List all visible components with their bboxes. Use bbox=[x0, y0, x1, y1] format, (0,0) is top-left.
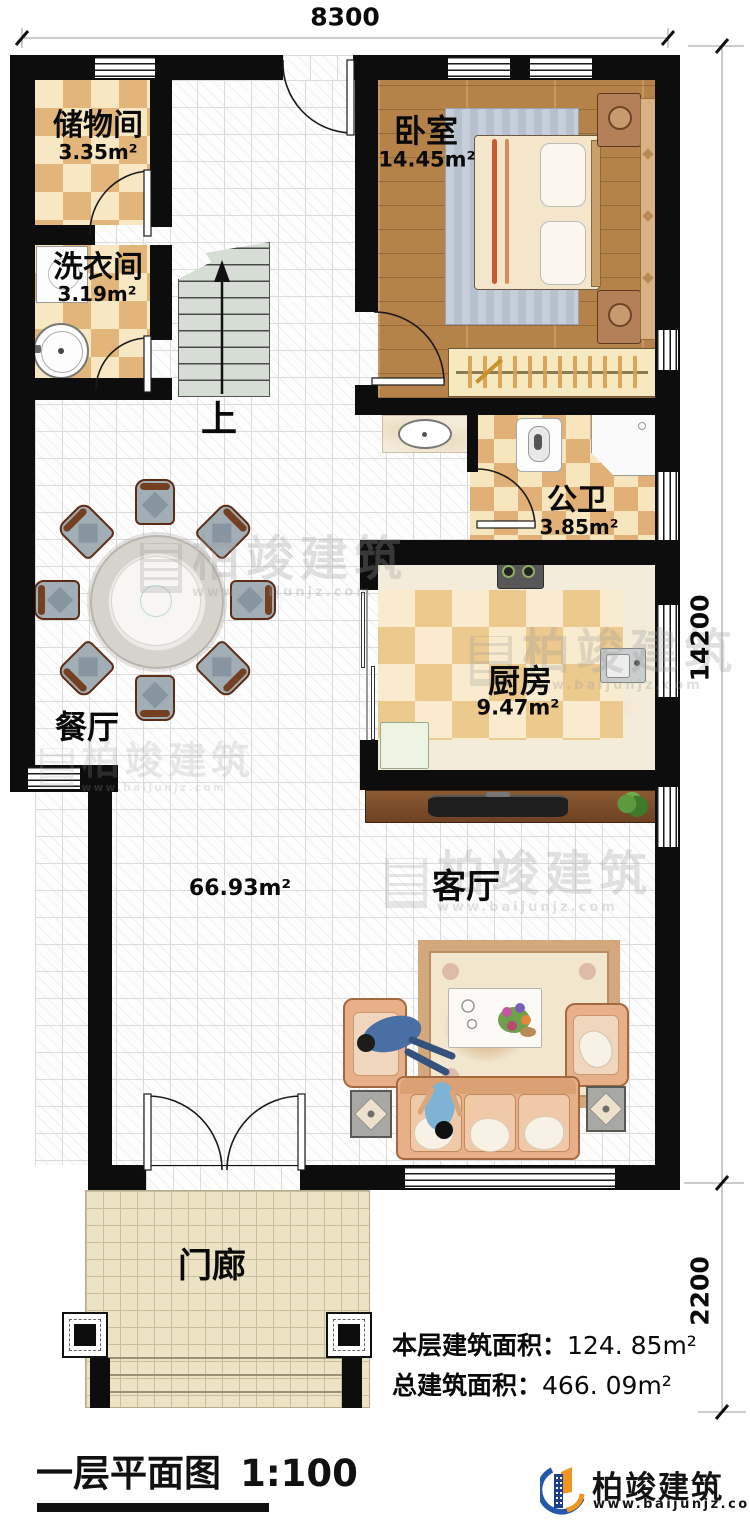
window-bedroom-top-2 bbox=[530, 57, 592, 78]
kitchen-sink-bowl bbox=[606, 654, 630, 678]
bed-stripe bbox=[492, 139, 497, 284]
wall-storage-laundry-divider bbox=[10, 225, 95, 245]
dining-table-center bbox=[140, 585, 172, 617]
floor-area-summary: 本层建筑面积：124. 85m² bbox=[392, 1326, 697, 1362]
window-storage-top bbox=[95, 57, 155, 78]
sofa-throw-pillow bbox=[524, 1116, 564, 1150]
porch-step-line bbox=[108, 1374, 348, 1376]
wall-living-left bbox=[88, 768, 112, 1190]
wall-bathroom-left-stub bbox=[467, 415, 478, 472]
total-area-value: 466. 09m² bbox=[542, 1371, 672, 1400]
room-label-bathroom: 公卫 bbox=[547, 486, 607, 516]
lamp-side-table bbox=[350, 1090, 392, 1138]
porch-step-line bbox=[108, 1357, 348, 1359]
window-kitchen-right bbox=[657, 605, 678, 697]
page-title: 一层平面图 bbox=[36, 1452, 221, 1495]
wall-kitchen-left-bottom bbox=[360, 740, 378, 770]
wall-left bbox=[10, 55, 35, 790]
tv-stand bbox=[486, 792, 510, 797]
room-area-kitchen: 9.47m² bbox=[477, 698, 560, 719]
wall-bedroom-bottom bbox=[355, 398, 680, 415]
title-underline bbox=[37, 1503, 269, 1512]
room-label-laundry: 洗衣间 bbox=[53, 253, 143, 283]
brand-website: www.baijunjz.com bbox=[593, 1497, 750, 1512]
cooktop-burner bbox=[522, 565, 535, 578]
room-label-bedroom: 卧室 bbox=[394, 115, 458, 147]
dimension-right-main: 14200 bbox=[688, 595, 713, 682]
wall-bedroom-left bbox=[355, 55, 378, 312]
porch-column-core bbox=[74, 1324, 96, 1346]
wall-storage-right bbox=[150, 55, 172, 227]
refrigerator bbox=[380, 722, 429, 769]
porch-pier bbox=[342, 1358, 362, 1408]
room-area-living: 66.93m² bbox=[189, 878, 291, 900]
sofa-throw-pillow bbox=[470, 1118, 510, 1152]
bed-stripe bbox=[505, 139, 509, 284]
wall-kitchen-bottom bbox=[360, 770, 680, 790]
wall-bedroom-left-stub bbox=[355, 385, 378, 398]
porch-column-core bbox=[338, 1324, 360, 1346]
porch-step-line bbox=[108, 1391, 348, 1393]
room-label-dining: 餐厅 bbox=[55, 711, 119, 743]
sofa-back bbox=[400, 1078, 576, 1094]
brand-logo-icon bbox=[540, 1462, 586, 1518]
window-bathroom-right bbox=[657, 472, 678, 540]
room-label-porch: 门廊 bbox=[178, 1249, 246, 1283]
dining-chair bbox=[135, 675, 175, 721]
dimension-top-width: 8300 bbox=[310, 5, 380, 30]
floor-area-label: 本层建筑面积： bbox=[392, 1331, 567, 1360]
bed-pillow bbox=[540, 221, 586, 285]
window-living-right bbox=[657, 787, 678, 847]
room-area-storage: 3.35m² bbox=[59, 142, 138, 162]
lamp-side-table bbox=[586, 1086, 626, 1132]
dining-chair bbox=[135, 479, 175, 525]
laundry-basin-drain bbox=[58, 348, 64, 354]
room-area-bedroom: 14.45m² bbox=[378, 150, 476, 171]
entry-opening-bottom bbox=[146, 1166, 300, 1190]
shower-drain bbox=[638, 422, 646, 430]
wall-kitchen-left-top bbox=[360, 565, 378, 590]
kitchen-sliding-door-panel bbox=[361, 592, 365, 668]
total-area-label: 总建筑面积： bbox=[392, 1371, 542, 1400]
cooktop-burner bbox=[502, 565, 515, 578]
wall-bathroom-kitchen bbox=[360, 540, 680, 565]
floor-area-value: 124. 85m² bbox=[567, 1331, 697, 1360]
window-living-bottom bbox=[405, 1167, 615, 1188]
room-label-living: 客厅 bbox=[432, 870, 500, 904]
room-label-storage: 储物间 bbox=[53, 111, 143, 141]
entry-opening-top bbox=[283, 55, 353, 80]
armchair-left-cushion bbox=[353, 1012, 399, 1076]
porch-pier bbox=[90, 1358, 110, 1408]
dining-chair bbox=[230, 580, 276, 620]
window-bedroom-right bbox=[657, 330, 678, 370]
wall-laundry-right bbox=[150, 245, 172, 340]
tv bbox=[428, 795, 568, 817]
kitchen-faucet bbox=[634, 660, 640, 666]
dining-chair bbox=[34, 580, 80, 620]
total-area-summary: 总建筑面积：466. 09m² bbox=[392, 1366, 672, 1402]
room-area-bathroom: 3.85m² bbox=[540, 517, 619, 537]
stairs-up-label: 上 bbox=[201, 402, 237, 438]
nightstand-ornament bbox=[608, 303, 632, 327]
window-bedroom-top-1 bbox=[448, 57, 510, 78]
plant bbox=[615, 792, 649, 818]
nightstand-ornament bbox=[608, 106, 632, 130]
room-area-laundry: 3.19m² bbox=[58, 284, 137, 304]
title-block: 一层平面图 1:100 bbox=[36, 1443, 358, 1497]
bed-pillow bbox=[540, 143, 586, 207]
kitchen-sliding-door-panel bbox=[371, 666, 375, 740]
squat-toilet-drain bbox=[534, 434, 542, 450]
bed-headboard bbox=[591, 140, 601, 287]
kitchen-sliding-door-track bbox=[366, 590, 368, 742]
floor-plan-canvas: 柏竣建筑 www.baijunjz.com 柏竣建筑 www.baijunjz.… bbox=[0, 0, 750, 1530]
bathroom-sink-drain bbox=[422, 432, 427, 437]
window-dining-left bbox=[28, 767, 80, 789]
wardrobe-hangers bbox=[468, 356, 648, 388]
coffee-table bbox=[448, 988, 542, 1048]
page-scale: 1:100 bbox=[240, 1452, 358, 1495]
dimension-right-porch: 2200 bbox=[688, 1256, 713, 1326]
room-label-kitchen: 厨房 bbox=[488, 665, 552, 697]
wall-laundry-bottom bbox=[10, 378, 172, 400]
